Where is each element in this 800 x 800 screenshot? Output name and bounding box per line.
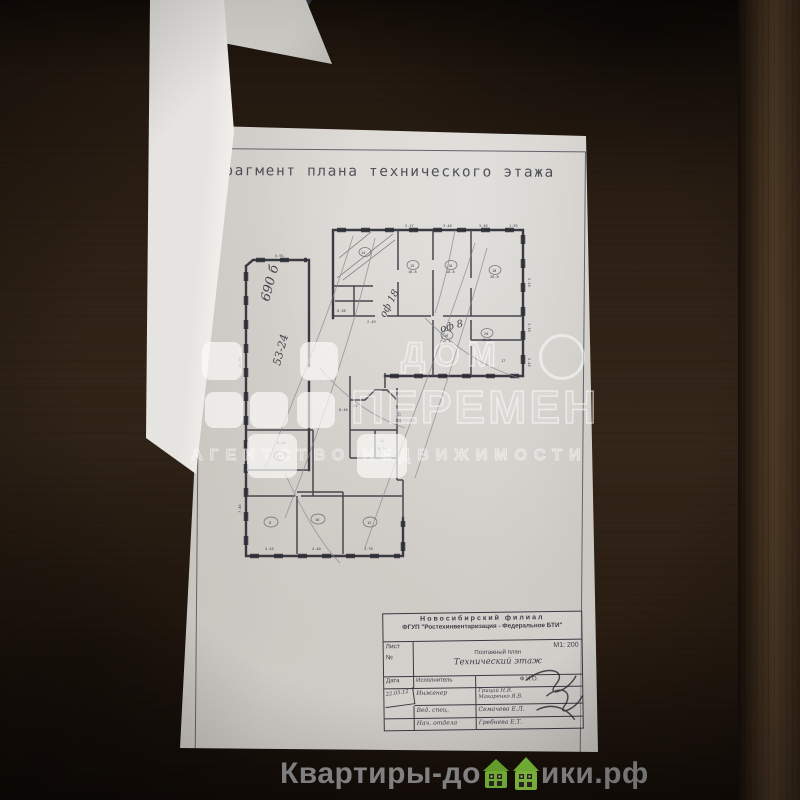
plan-room-number-circles — [264, 248, 501, 528]
svg-text:18.8: 18.8 — [442, 340, 451, 344]
floor-plan: 5.912.173.403.461.552.193.192.4522.907.4… — [225, 218, 535, 568]
scale-label: М1: 200 — [553, 642, 578, 649]
svg-text:20.8: 20.8 — [490, 275, 499, 279]
svg-text:6.44: 6.44 — [277, 441, 286, 445]
svg-text:13: 13 — [277, 455, 281, 459]
caption-prefix: Квартиры-до — [280, 757, 481, 791]
svg-text:21: 21 — [353, 404, 357, 408]
svg-text:22.77: 22.77 — [398, 412, 402, 423]
svg-text:20: 20 — [484, 332, 488, 336]
svg-text:5.91: 5.91 — [275, 254, 284, 258]
svg-text:2.19: 2.19 — [527, 278, 531, 287]
photo-of-floorplan-document: Фрагмент плана технического этажа 5.912.… — [0, 0, 800, 800]
cell-empty — [385, 719, 415, 730]
svg-text:17: 17 — [501, 359, 505, 363]
sheet-number-cell: Лист № — [384, 642, 414, 676]
site-caption: Квартиры-до ики.рф — [280, 756, 649, 792]
svg-text:3.46: 3.46 — [479, 224, 488, 228]
org-name: ФГУП "Ростехинвентаризация - Федеральное… — [383, 622, 581, 632]
header-executor: Исполнитель — [414, 676, 476, 689]
plan-interior-walls — [246, 230, 523, 554]
svg-text:2.49: 2.49 — [367, 320, 376, 324]
svg-text:3.19: 3.19 — [527, 323, 531, 332]
svg-text:14: 14 — [361, 251, 365, 255]
svg-text:1.55: 1.55 — [509, 224, 518, 228]
svg-text:8.38: 8.38 — [337, 309, 346, 313]
svg-text:2.45: 2.45 — [527, 358, 531, 367]
svg-text:4.40: 4.40 — [312, 547, 321, 551]
svg-text:7.45: 7.45 — [238, 504, 242, 513]
cell-role-specialist: Вед. спец. — [414, 705, 476, 719]
svg-text:16: 16 — [448, 264, 452, 268]
svg-text:12: 12 — [367, 521, 371, 525]
cell-role-head: Нач. отдела — [415, 718, 477, 730]
sheet-number-symbol: № — [386, 654, 411, 661]
title-block-stamp: Новосибирский филиал ФГУП "Ростехинвента… — [382, 611, 584, 732]
svg-text:18.8: 18.8 — [446, 270, 455, 274]
sheet-label: Лист — [386, 643, 411, 650]
svg-text:9.10: 9.10 — [378, 447, 387, 451]
svg-text:11: 11 — [380, 439, 384, 443]
cell-date: 22.05.12 — [383, 687, 415, 708]
caption-suffix: ики.рф — [541, 757, 649, 791]
svg-text:8.40: 8.40 — [339, 408, 348, 412]
svg-text:690 б: 690 б — [258, 263, 282, 303]
svg-text:22.90: 22.90 — [238, 357, 242, 368]
svg-text:16.8: 16.8 — [408, 270, 417, 274]
plan-exterior-walls — [246, 230, 523, 556]
svg-text:4.45: 4.45 — [265, 547, 274, 551]
cell-empty — [384, 706, 414, 719]
svg-text:10: 10 — [315, 518, 319, 522]
svg-text:3.40: 3.40 — [443, 224, 452, 228]
svg-text:3.70: 3.70 — [364, 547, 373, 551]
svg-text:8: 8 — [269, 521, 271, 525]
page-title: Фрагмент плана технического этажа — [214, 163, 584, 181]
house-icons — [482, 756, 540, 790]
svg-text:18: 18 — [492, 269, 496, 273]
svg-text:2.17: 2.17 — [405, 224, 414, 228]
svg-text:53-24: 53-24 — [270, 333, 291, 367]
cell-role-engineer: Инженер — [414, 688, 476, 706]
plan-duct-lines — [337, 232, 395, 280]
wood-right-grain — [738, 0, 800, 800]
stamp-organization: Новосибирский филиал ФГУП "Ростехинвента… — [383, 612, 581, 643]
svg-text:16.8: 16.8 — [482, 338, 491, 342]
signature-scribble — [514, 662, 591, 727]
plan-window-piers — [246, 230, 523, 556]
svg-text:19: 19 — [444, 334, 448, 338]
svg-text:15: 15 — [410, 264, 414, 268]
floorplan-sheet: Фрагмент плана технического этажа 5.912.… — [178, 126, 602, 756]
wood-right-plank — [738, 0, 800, 800]
